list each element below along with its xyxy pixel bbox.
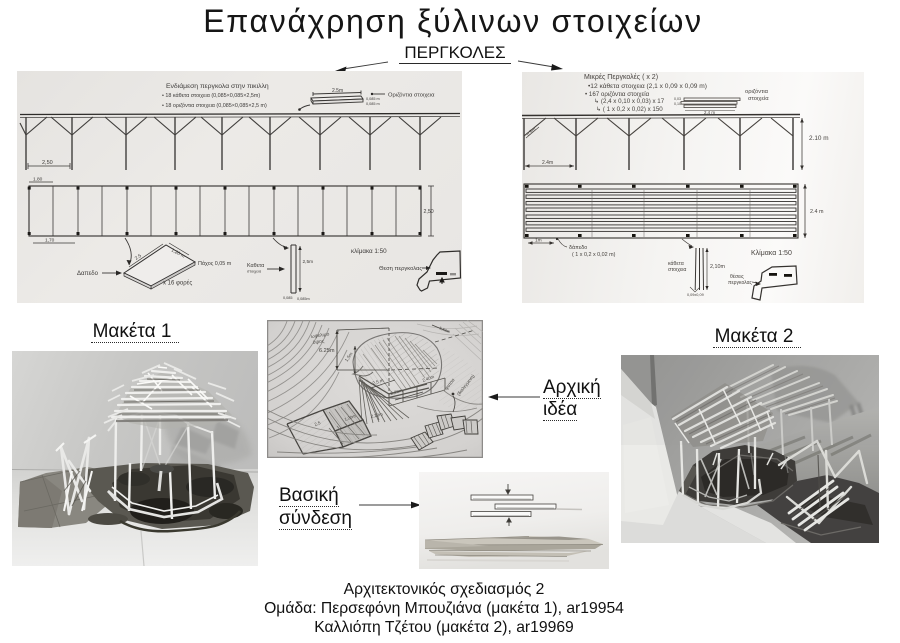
svg-text:• 18 κάθετα στοιχεια (0,085×0,: • 18 κάθετα στοιχεια (0,085×0,085×2,5m) (162, 92, 260, 99)
svg-text:0,10: 0,10 (674, 102, 681, 106)
svg-text:0,085 m: 0,085 m (366, 97, 380, 101)
svg-text:↳ (2,4 x 0,10 x 0,03) x 17: ↳ (2,4 x 0,10 x 0,03) x 17 (594, 98, 665, 105)
svg-text:1m: 1m (535, 238, 542, 244)
svg-text:( 1 x 0,2 x 0,02 m): ( 1 x 0,2 x 0,02 m) (572, 252, 616, 258)
svg-text:στοιχεια: στοιχεια (668, 267, 686, 273)
svg-text:Θεση περγκολας: Θεση περγκολας (379, 266, 422, 272)
svg-text:κλίμακα 1:50: κλίμακα 1:50 (351, 247, 387, 255)
svg-text:x 16 φορές: x 16 φορές (163, 280, 192, 287)
svg-text:0,085m: 0,085m (297, 297, 310, 301)
svg-text:0,085: 0,085 (283, 296, 293, 300)
svg-text:Κλίμακα 1:50: Κλίμακα 1:50 (751, 249, 792, 257)
svg-text:2,10m: 2,10m (710, 264, 725, 270)
svg-text:2.4 m: 2.4 m (810, 209, 824, 215)
svg-text:δάπεδο: δάπεδο (569, 244, 587, 251)
svg-text:Δαπεδο: Δαπεδο (77, 271, 99, 277)
svg-text:•12 κάθετα στοιχεια (2,1 x 0,0: •12 κάθετα στοιχεια (2,1 x 0,09 x 0,09 m… (588, 82, 707, 90)
svg-text:Πάχος 0,05 m: Πάχος 0,05 m (198, 260, 232, 267)
svg-text:κάθετα: κάθετα (668, 260, 684, 267)
svg-text:2.10 m: 2.10 m (809, 135, 829, 142)
svg-text:στοιχεια: στοιχεια (247, 269, 262, 274)
svg-text:• 18 οριζόντια στοιχεια (0,085: • 18 οριζόντια στοιχεια (0,085×0,085×2,5… (162, 102, 267, 109)
svg-text:0,09x0,09: 0,09x0,09 (687, 293, 704, 297)
svg-text:περγκολας: περγκολας (728, 280, 752, 286)
svg-text:Ενδιάμεση περγκολα στην πικιλλ: Ενδιάμεση περγκολα στην πικιλλη (166, 82, 269, 90)
svg-text:6.25m: 6.25m (319, 348, 335, 354)
svg-text:2,50: 2,50 (424, 209, 434, 215)
svg-text:θέσεις: θέσεις (730, 273, 744, 280)
svg-text:οριζόντια: οριζόντια (745, 88, 769, 95)
svg-text:• 167 οριζόντια στοιχεία: • 167 οριζόντια στοιχεία (585, 91, 650, 98)
svg-text:Οριζόντια στοιχεια: Οριζόντια στοιχεια (388, 92, 435, 99)
svg-text:0,085 m: 0,085 m (366, 102, 380, 106)
svg-text:↳ ( 1 x 0,2 x 0,02) x 150: ↳ ( 1 x 0,2 x 0,02) x 150 (596, 106, 663, 113)
svg-text:0,03: 0,03 (674, 97, 681, 101)
svg-text:2.5: 2.5 (134, 253, 143, 262)
svg-text:2.5m: 2.5m (332, 88, 343, 94)
svg-text:Μικρές Περγκολές ( x 2): Μικρές Περγκολές ( x 2) (584, 73, 658, 81)
svg-text:στοιχεία: στοιχεία (748, 96, 769, 102)
svg-text:0,5m: 0,5m (525, 126, 536, 137)
svg-text:1,70: 1,70 (45, 238, 55, 244)
svg-text:2,5m: 2,5m (303, 259, 314, 265)
svg-text:2,50: 2,50 (42, 160, 53, 166)
svg-text:1.80: 1.80 (33, 177, 43, 183)
svg-text:2.4m: 2.4m (542, 160, 553, 166)
